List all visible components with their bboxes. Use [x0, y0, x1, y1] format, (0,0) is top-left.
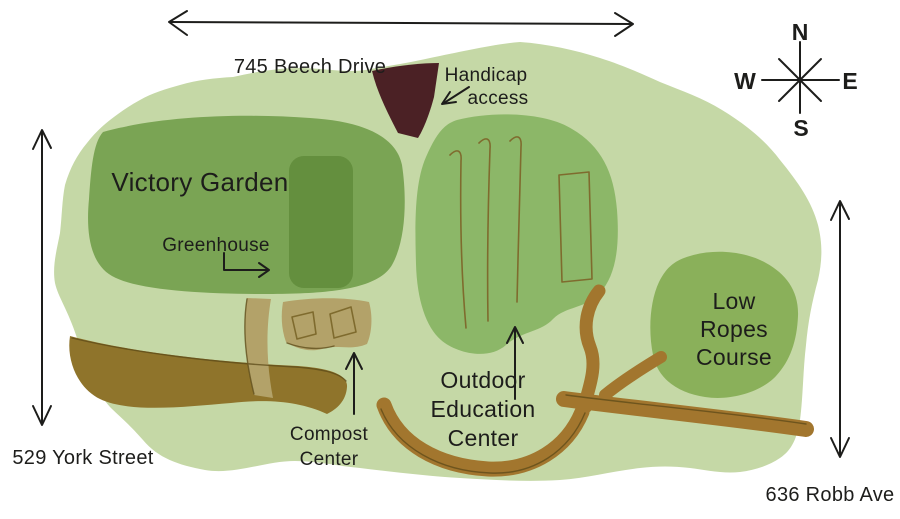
label-outdoor-ed-line1: Outdoor [440, 367, 525, 393]
street-label-york-street: 529 York Street [12, 447, 153, 469]
label-handicap-access-line2: access [468, 88, 529, 109]
compass-label-south: S [793, 115, 808, 141]
label-outdoor-ed-line3: Center [448, 425, 519, 451]
street-label-robb-ave: 636 Robb Ave [766, 484, 895, 506]
compass-label-east: E [842, 68, 857, 94]
label-compost-line1: Compost [290, 424, 369, 445]
label-greenhouse: Greenhouse [162, 235, 270, 256]
greenhouse-building [289, 156, 353, 288]
label-low-ropes-line3: Course [696, 344, 772, 370]
compass-label-west: W [734, 68, 756, 94]
map-canvas: 745 Beech Drive 529 York Street 636 Robb… [0, 0, 900, 519]
compass-rose-icon [762, 42, 839, 113]
beech-drive-extent-arrow [170, 22, 632, 24]
label-handicap-access-line1: Handicap [445, 65, 528, 86]
label-outdoor-ed-line2: Education [431, 396, 536, 422]
victory-garden-area [88, 116, 405, 294]
compost-pad [282, 298, 372, 350]
label-low-ropes-line1: Low [712, 288, 755, 314]
label-compost-line2: Center [300, 449, 359, 470]
label-victory-garden: Victory Garden [111, 167, 288, 197]
garden-site-map: 745 Beech Drive 529 York Street 636 Robb… [0, 0, 900, 519]
label-low-ropes-line2: Ropes [700, 316, 768, 342]
street-label-beech-drive: 745 Beech Drive [234, 56, 386, 78]
compass-label-north: N [792, 19, 809, 45]
